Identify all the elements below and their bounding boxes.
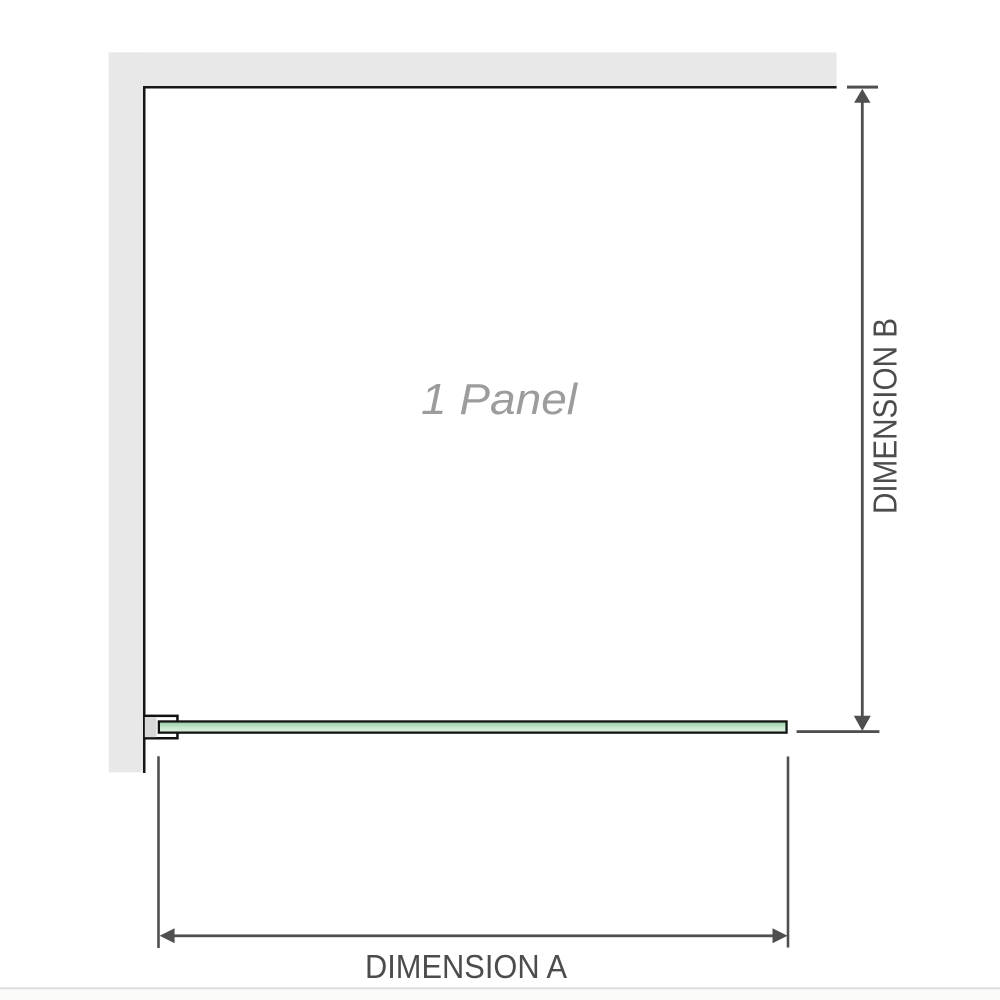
svg-text:DIMENSION B: DIMENSION B bbox=[868, 318, 905, 514]
svg-text:DIMENSION A: DIMENSION A bbox=[365, 949, 568, 986]
svg-text:1 Panel: 1 Panel bbox=[421, 375, 578, 424]
